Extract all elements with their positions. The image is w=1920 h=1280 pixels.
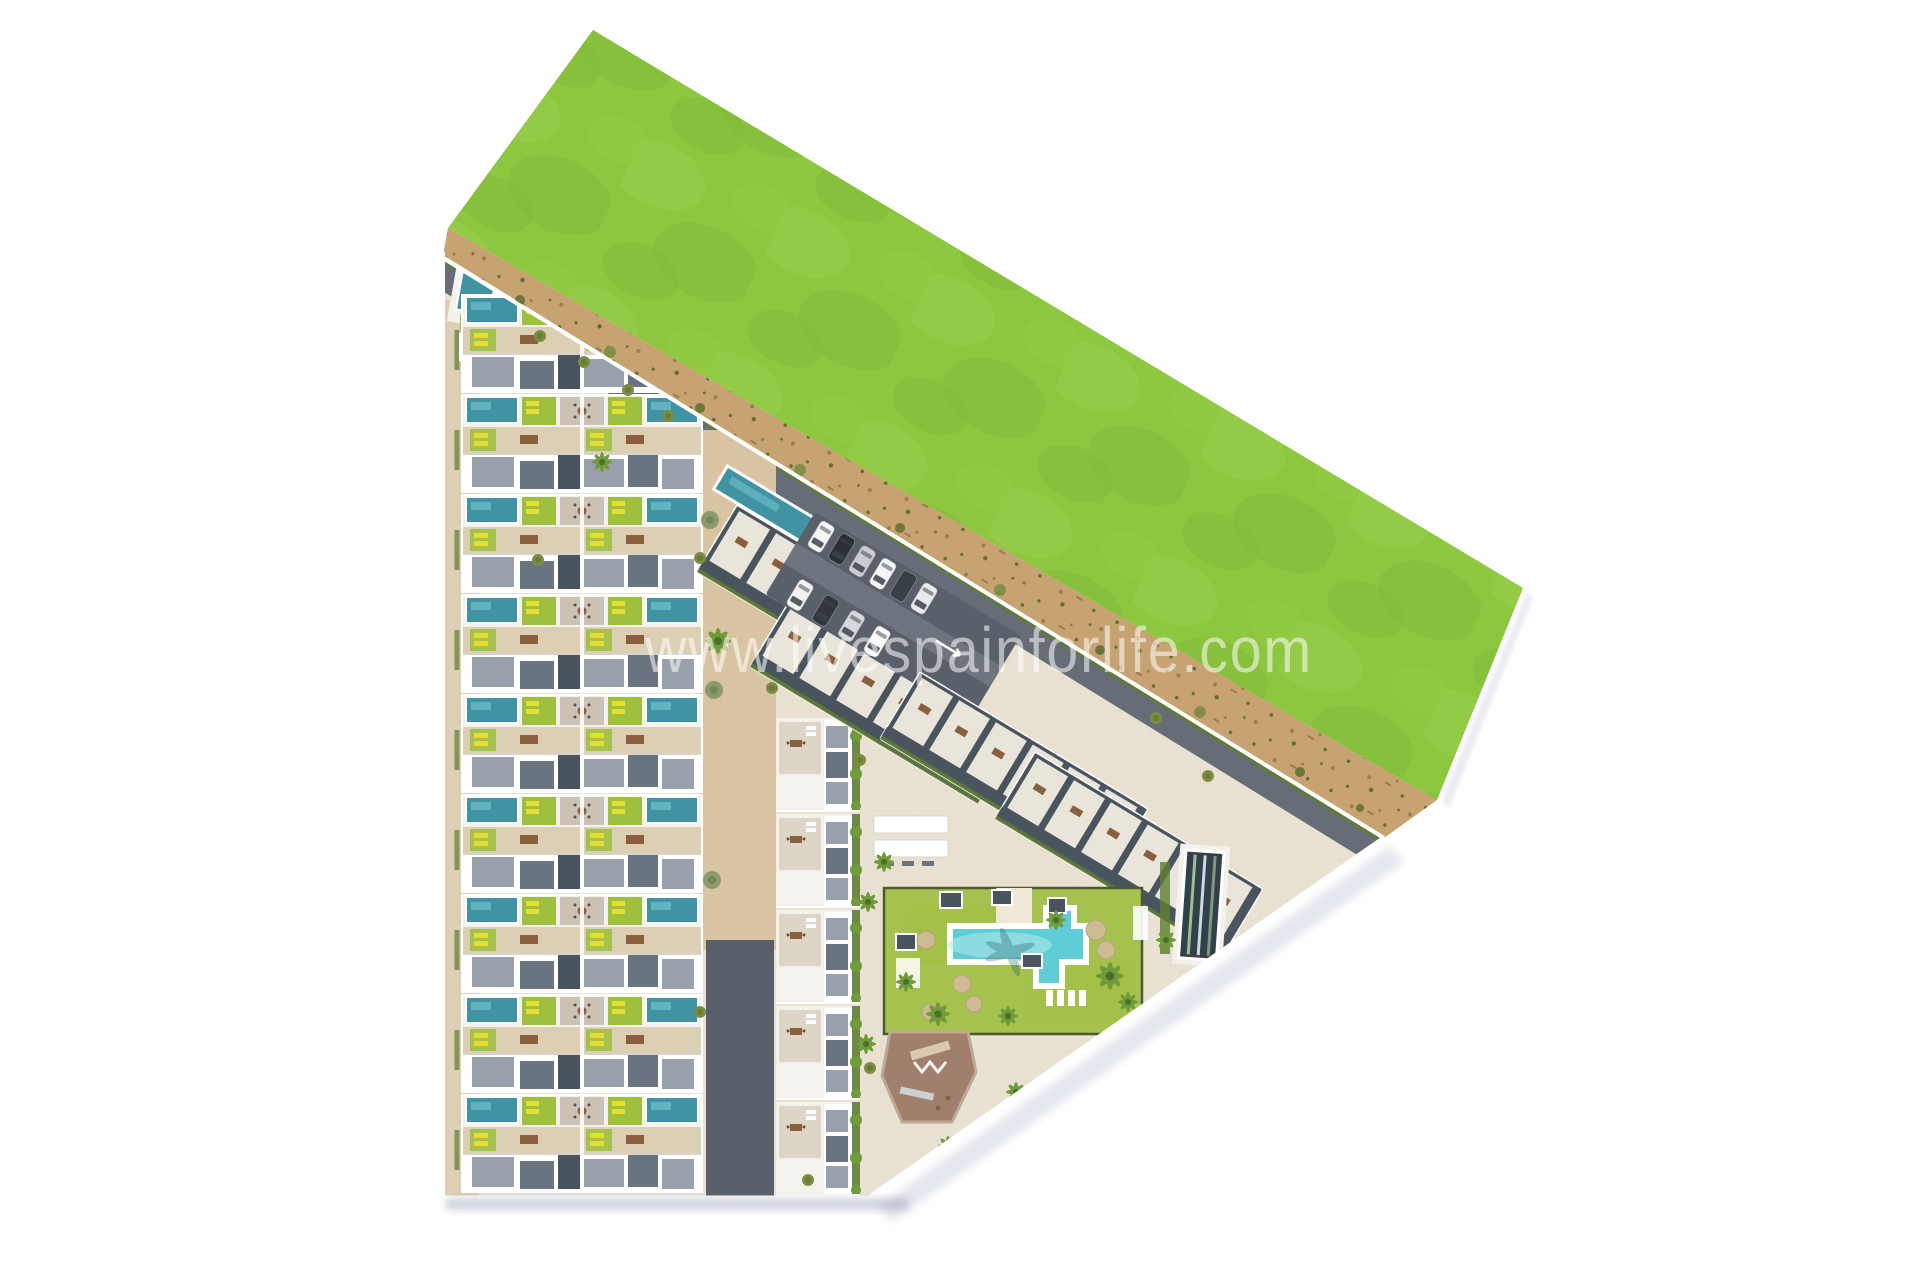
watermark-text: www.livespainforlife.com <box>644 614 1313 686</box>
townhouse-row <box>462 795 702 892</box>
townhouse-row <box>462 1095 702 1192</box>
townhouse-row <box>776 814 862 908</box>
left-townhouse-block <box>462 295 702 1192</box>
middle-townhouse-block <box>776 718 862 1196</box>
townhouse-row <box>462 695 702 792</box>
access-road <box>706 940 774 1197</box>
townhouse-row <box>776 1006 862 1100</box>
townhouse-row <box>462 495 702 592</box>
townhouse-row <box>462 395 702 492</box>
townhouse-row <box>776 910 862 1004</box>
townhouse-row <box>462 895 702 992</box>
amenity-garden <box>884 888 1148 1034</box>
site-plan-page: www.livespainforlife.com <box>0 0 1920 1280</box>
townhouse-row <box>776 1102 862 1196</box>
site-plan-render: www.livespainforlife.com <box>0 0 1920 1280</box>
townhouse-row <box>462 995 702 1092</box>
townhouse-row <box>776 718 862 812</box>
lap-pool <box>1172 844 1230 967</box>
